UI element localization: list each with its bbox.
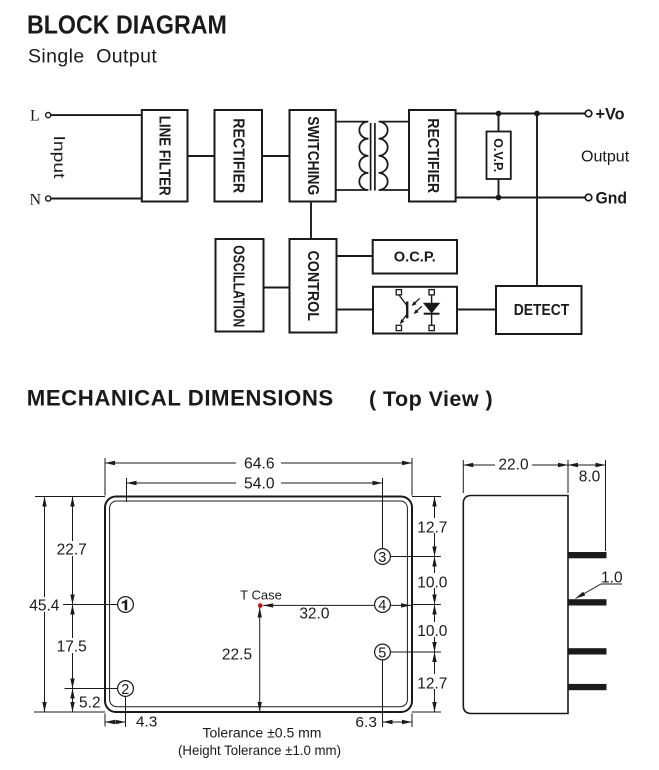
svg-text:2: 2 xyxy=(121,682,129,698)
svg-text:12.7: 12.7 xyxy=(417,675,447,692)
svg-text:12.7: 12.7 xyxy=(417,519,447,536)
svg-text:N: N xyxy=(30,191,42,208)
svg-text:22.7: 22.7 xyxy=(57,541,87,558)
svg-text:O.V.P.: O.V.P. xyxy=(491,138,506,172)
svg-text:L: L xyxy=(30,108,40,125)
svg-text:5: 5 xyxy=(378,645,386,661)
svg-text:DETECT: DETECT xyxy=(514,302,570,319)
svg-text:BLOCK DIAGRAM: BLOCK DIAGRAM xyxy=(27,11,227,39)
svg-text:RECTIFIER: RECTIFIER xyxy=(230,118,247,193)
svg-text:10.0: 10.0 xyxy=(417,623,448,640)
svg-text:3: 3 xyxy=(378,550,386,566)
svg-text:+Vo: +Vo xyxy=(596,104,625,123)
svg-text:1.0: 1.0 xyxy=(601,570,623,587)
svg-text:Tolerance ±0.5 mm: Tolerance ±0.5 mm xyxy=(203,725,322,741)
svg-text:64.6: 64.6 xyxy=(244,456,275,473)
svg-text:45.4: 45.4 xyxy=(29,597,60,614)
svg-text:22.0: 22.0 xyxy=(498,457,529,474)
svg-text:10.0: 10.0 xyxy=(417,574,448,591)
svg-text:32.0: 32.0 xyxy=(299,606,330,623)
svg-text:OSCILLATION: OSCILLATION xyxy=(229,245,246,327)
svg-text:O.C.P.: O.C.P. xyxy=(394,249,436,266)
svg-text:5.2: 5.2 xyxy=(79,695,101,712)
svg-text:Output: Output xyxy=(581,148,630,165)
svg-text:6.3: 6.3 xyxy=(355,714,377,731)
svg-text:(Height Tolerance ±1.0 mm): (Height Tolerance ±1.0 mm) xyxy=(178,742,341,758)
svg-text:CONTROL: CONTROL xyxy=(304,250,321,321)
svg-text:4: 4 xyxy=(378,598,386,614)
svg-text:T Case: T Case xyxy=(240,588,282,603)
svg-text:Single Output: Single Output xyxy=(28,46,157,68)
svg-text:8.0: 8.0 xyxy=(579,468,601,485)
svg-text:RECTIFIER: RECTIFIER xyxy=(424,118,441,193)
svg-text:22.5: 22.5 xyxy=(222,647,252,664)
svg-text:( Top View ): ( Top View ) xyxy=(369,387,493,411)
svg-text:MECHANICAL DIMENSIONS: MECHANICAL DIMENSIONS xyxy=(27,386,334,411)
svg-text:4.3: 4.3 xyxy=(136,713,158,730)
svg-text:54.0: 54.0 xyxy=(244,476,275,493)
svg-text:Gnd: Gnd xyxy=(596,188,628,207)
svg-text:Input: Input xyxy=(50,136,67,180)
svg-text:LINE FILTER: LINE FILTER xyxy=(156,116,173,196)
svg-text:17.5: 17.5 xyxy=(57,638,87,655)
svg-text:SWITCHING: SWITCHING xyxy=(304,116,321,195)
